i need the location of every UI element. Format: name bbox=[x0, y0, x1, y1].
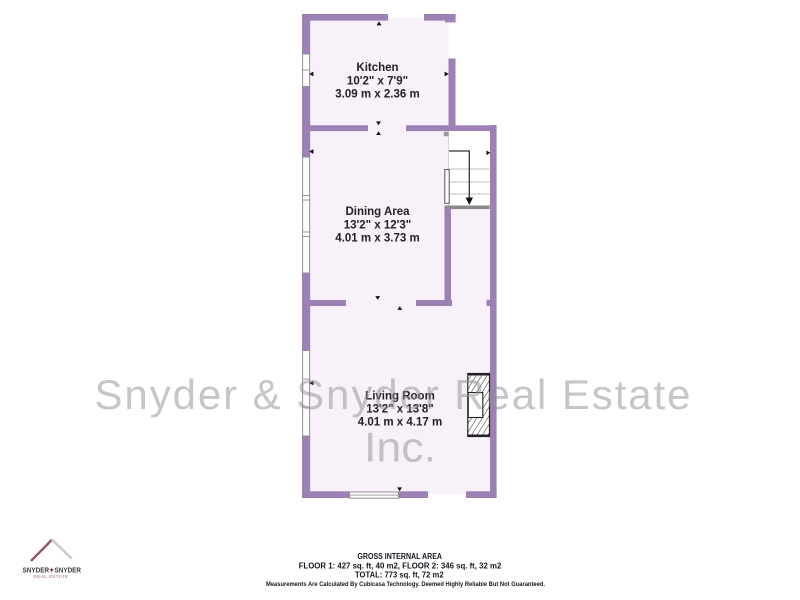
svg-text:13'2" x 12'3": 13'2" x 12'3" bbox=[344, 220, 412, 232]
svg-text:TOTAL: 773 sq. ft, 72 m2: TOTAL: 773 sq. ft, 72 m2 bbox=[355, 570, 444, 579]
svg-text:Snyder & Snyder Real Estate: Snyder & Snyder Real Estate bbox=[95, 371, 691, 418]
svg-text:REAL ESTATE: REAL ESTATE bbox=[33, 574, 68, 579]
svg-text:FLOOR 1: 427 sq. ft, 40 m2, FL: FLOOR 1: 427 sq. ft, 40 m2, FLOOR 2: 346… bbox=[299, 561, 502, 570]
svg-text:Kitchen: Kitchen bbox=[356, 62, 398, 74]
svg-text:3.09 m x 2.36 m: 3.09 m x 2.36 m bbox=[335, 89, 419, 101]
svg-text:4.01 m x 3.73 m: 4.01 m x 3.73 m bbox=[335, 233, 419, 245]
svg-text:Inc.: Inc. bbox=[364, 424, 436, 471]
svg-text:Dining Area: Dining Area bbox=[345, 206, 410, 218]
svg-text:Measurements Are Calculated By: Measurements Are Calculated By Cubicasa … bbox=[266, 581, 545, 588]
svg-text:GROSS INTERNAL AREA: GROSS INTERNAL AREA bbox=[357, 552, 442, 561]
svg-text:10'2" x 7'9": 10'2" x 7'9" bbox=[347, 76, 408, 88]
